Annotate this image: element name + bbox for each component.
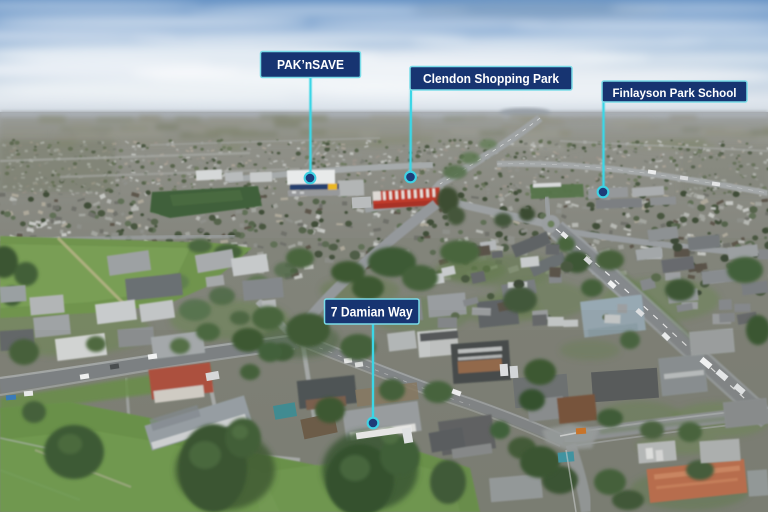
svg-text:PAK’nSAVE: PAK’nSAVE (277, 57, 344, 72)
svg-text:Clendon Shopping Park: Clendon Shopping Park (423, 72, 559, 86)
svg-text:Finlayson Park School: Finlayson Park School (613, 86, 737, 100)
svg-text:7 Damian Way: 7 Damian Way (331, 303, 413, 319)
